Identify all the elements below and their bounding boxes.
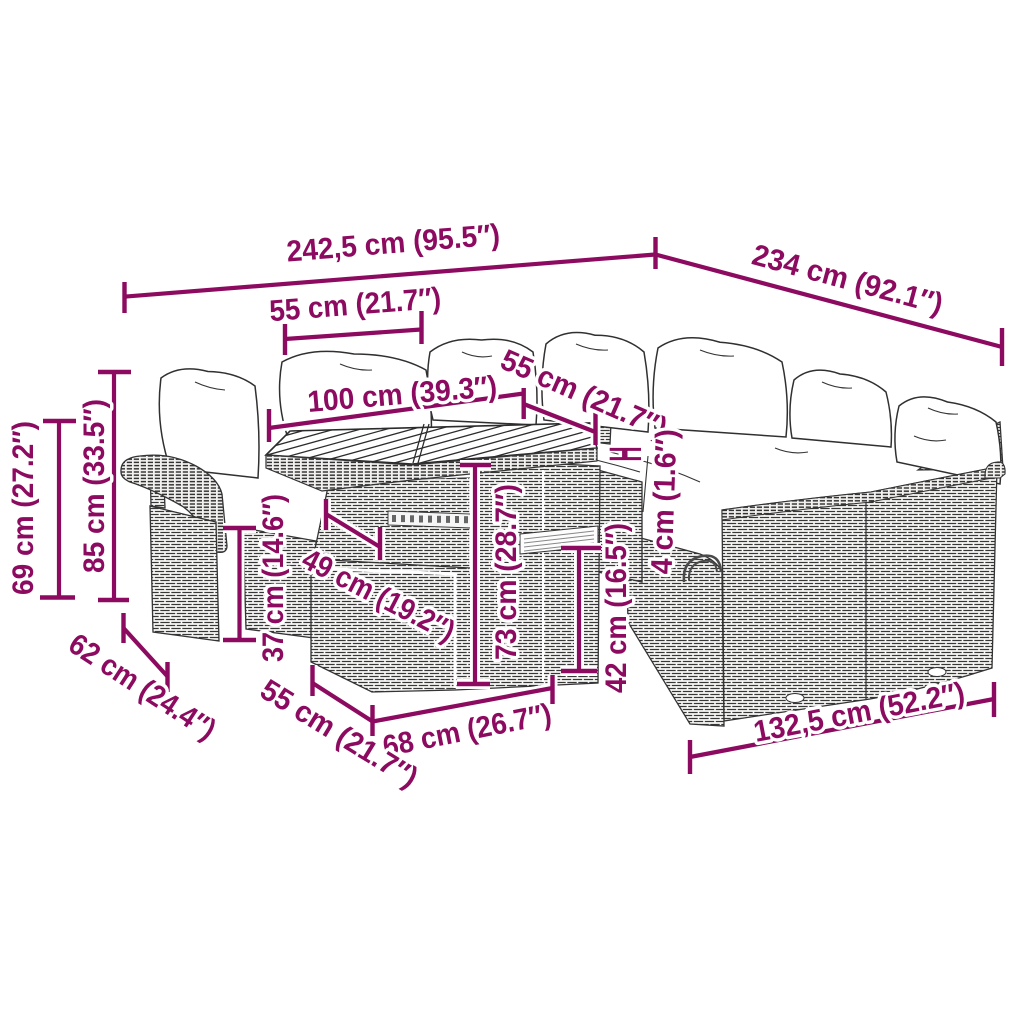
svg-text:42 cm (16.5″): 42 cm (16.5″) <box>600 523 633 693</box>
svg-text:69 cm (27.2″): 69 cm (27.2″) <box>7 421 40 595</box>
svg-text:37 cm (14.6″): 37 cm (14.6″) <box>257 494 290 662</box>
svg-text:73 cm (28.7″): 73 cm (28.7″) <box>490 484 523 660</box>
svg-text:H: H <box>600 447 651 462</box>
svg-text:85 cm (33.5″): 85 cm (33.5″) <box>78 399 111 573</box>
svg-text:4 cm (1.6″): 4 cm (1.6″) <box>645 429 683 575</box>
